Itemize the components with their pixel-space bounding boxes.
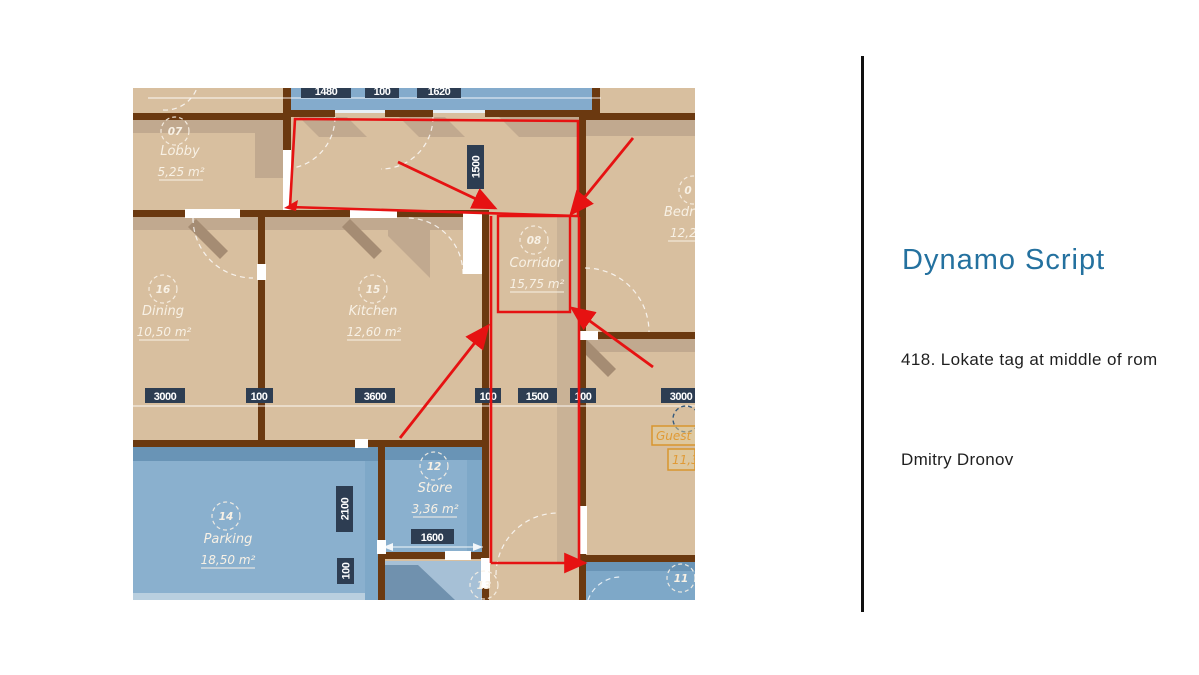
room-08-number: 08 (527, 235, 542, 247)
room-12-name: Store (418, 481, 453, 496)
dim-100-vertical: 100 (341, 562, 353, 579)
dim-1480: 1480 (315, 88, 338, 98)
dim-2100-vertical: 2100 (340, 497, 352, 520)
dim-1620: 1620 (428, 88, 451, 98)
room-12-area: 3,36 m² (411, 502, 458, 516)
room-16-name: Dining (142, 304, 184, 319)
room-14-number: 14 (219, 511, 234, 523)
room-bedroom-area: 12,2 (670, 226, 695, 240)
room-07-number: 07 (168, 126, 183, 138)
room-08-area: 15,75 m² (510, 277, 565, 291)
room-14-name: Parking (204, 532, 253, 547)
vertical-divider (861, 56, 864, 612)
room-11-number: 11 (674, 573, 689, 585)
dim-1500-vertical: 1500 (471, 155, 483, 178)
lesson-caption: 418. Lokate tag at middle of rom (901, 350, 1158, 370)
room-13-number: 13 (477, 580, 492, 592)
room-15-number: 15 (366, 284, 381, 296)
room-08-name: Corridor (510, 256, 565, 271)
room-15-name: Kitchen (349, 304, 398, 319)
dim-100-b: 100 (480, 391, 497, 403)
room-bedroom-number: 0 (684, 185, 691, 197)
floor-plan: 1480 100 1620 1500 3000 100 3600 100 150… (133, 88, 695, 600)
slide: 1480 100 1620 1500 3000 100 3600 100 150… (0, 0, 1199, 675)
room-12-number: 12 (427, 461, 442, 473)
dim-100-a: 100 (251, 391, 268, 403)
room-07-area: 5,25 m² (157, 165, 204, 179)
dim-3600: 3600 (364, 391, 387, 403)
room-16-area: 10,50 m² (137, 325, 192, 339)
room-16-number: 16 (156, 284, 171, 296)
dim-3000-left: 3000 (154, 391, 177, 403)
page-title: Dynamo Script (902, 244, 1105, 277)
author-name: Dmitry Dronov (901, 450, 1014, 470)
room-14-area: 18,50 m² (201, 553, 256, 567)
highlight-tag-name: Guest (656, 429, 693, 443)
room-15-area: 12,60 m² (347, 325, 402, 339)
dim-100-c: 100 (575, 391, 592, 403)
room-bedroom-name: Bedr (664, 205, 695, 220)
room-07-name: Lobby (160, 144, 200, 159)
dim-3000-right: 3000 (670, 391, 693, 403)
highlight-tag-area: 11,3 (672, 453, 695, 467)
dim-1600: 1600 (421, 532, 444, 544)
dim-100-top: 100 (374, 88, 391, 98)
dim-1500-mid: 1500 (526, 391, 549, 403)
